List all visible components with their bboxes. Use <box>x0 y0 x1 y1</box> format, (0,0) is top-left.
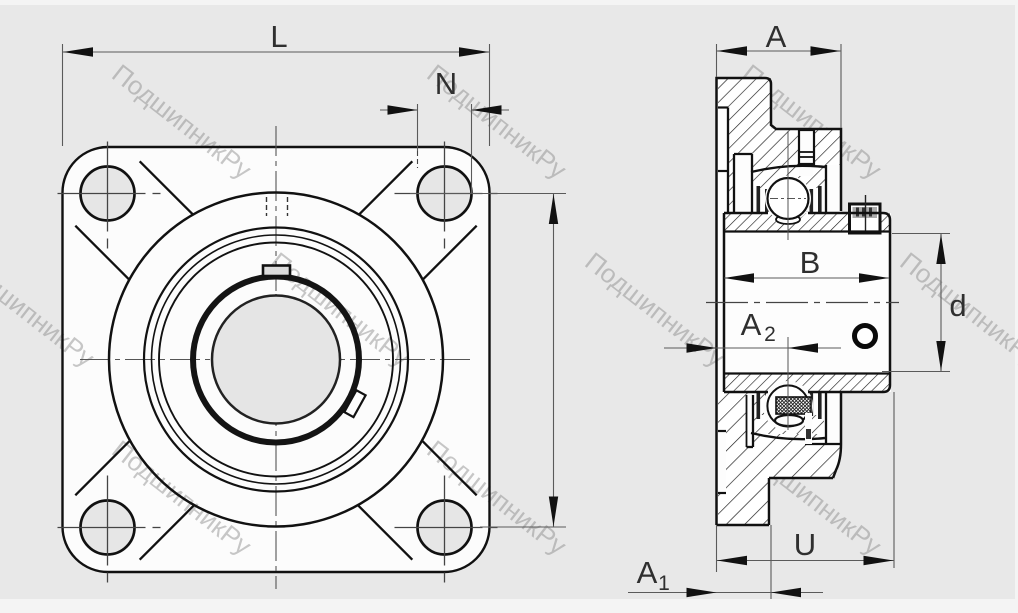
svg-text:A: A <box>741 307 762 342</box>
svg-text:U: U <box>794 527 816 562</box>
svg-text:A: A <box>637 555 658 590</box>
svg-text:2: 2 <box>764 323 776 346</box>
svg-text:A: A <box>766 19 787 54</box>
svg-text:1: 1 <box>658 572 670 595</box>
svg-text:N: N <box>435 66 457 101</box>
svg-text:d: d <box>949 288 966 323</box>
svg-text:B: B <box>800 245 821 280</box>
svg-text:L: L <box>270 19 287 54</box>
